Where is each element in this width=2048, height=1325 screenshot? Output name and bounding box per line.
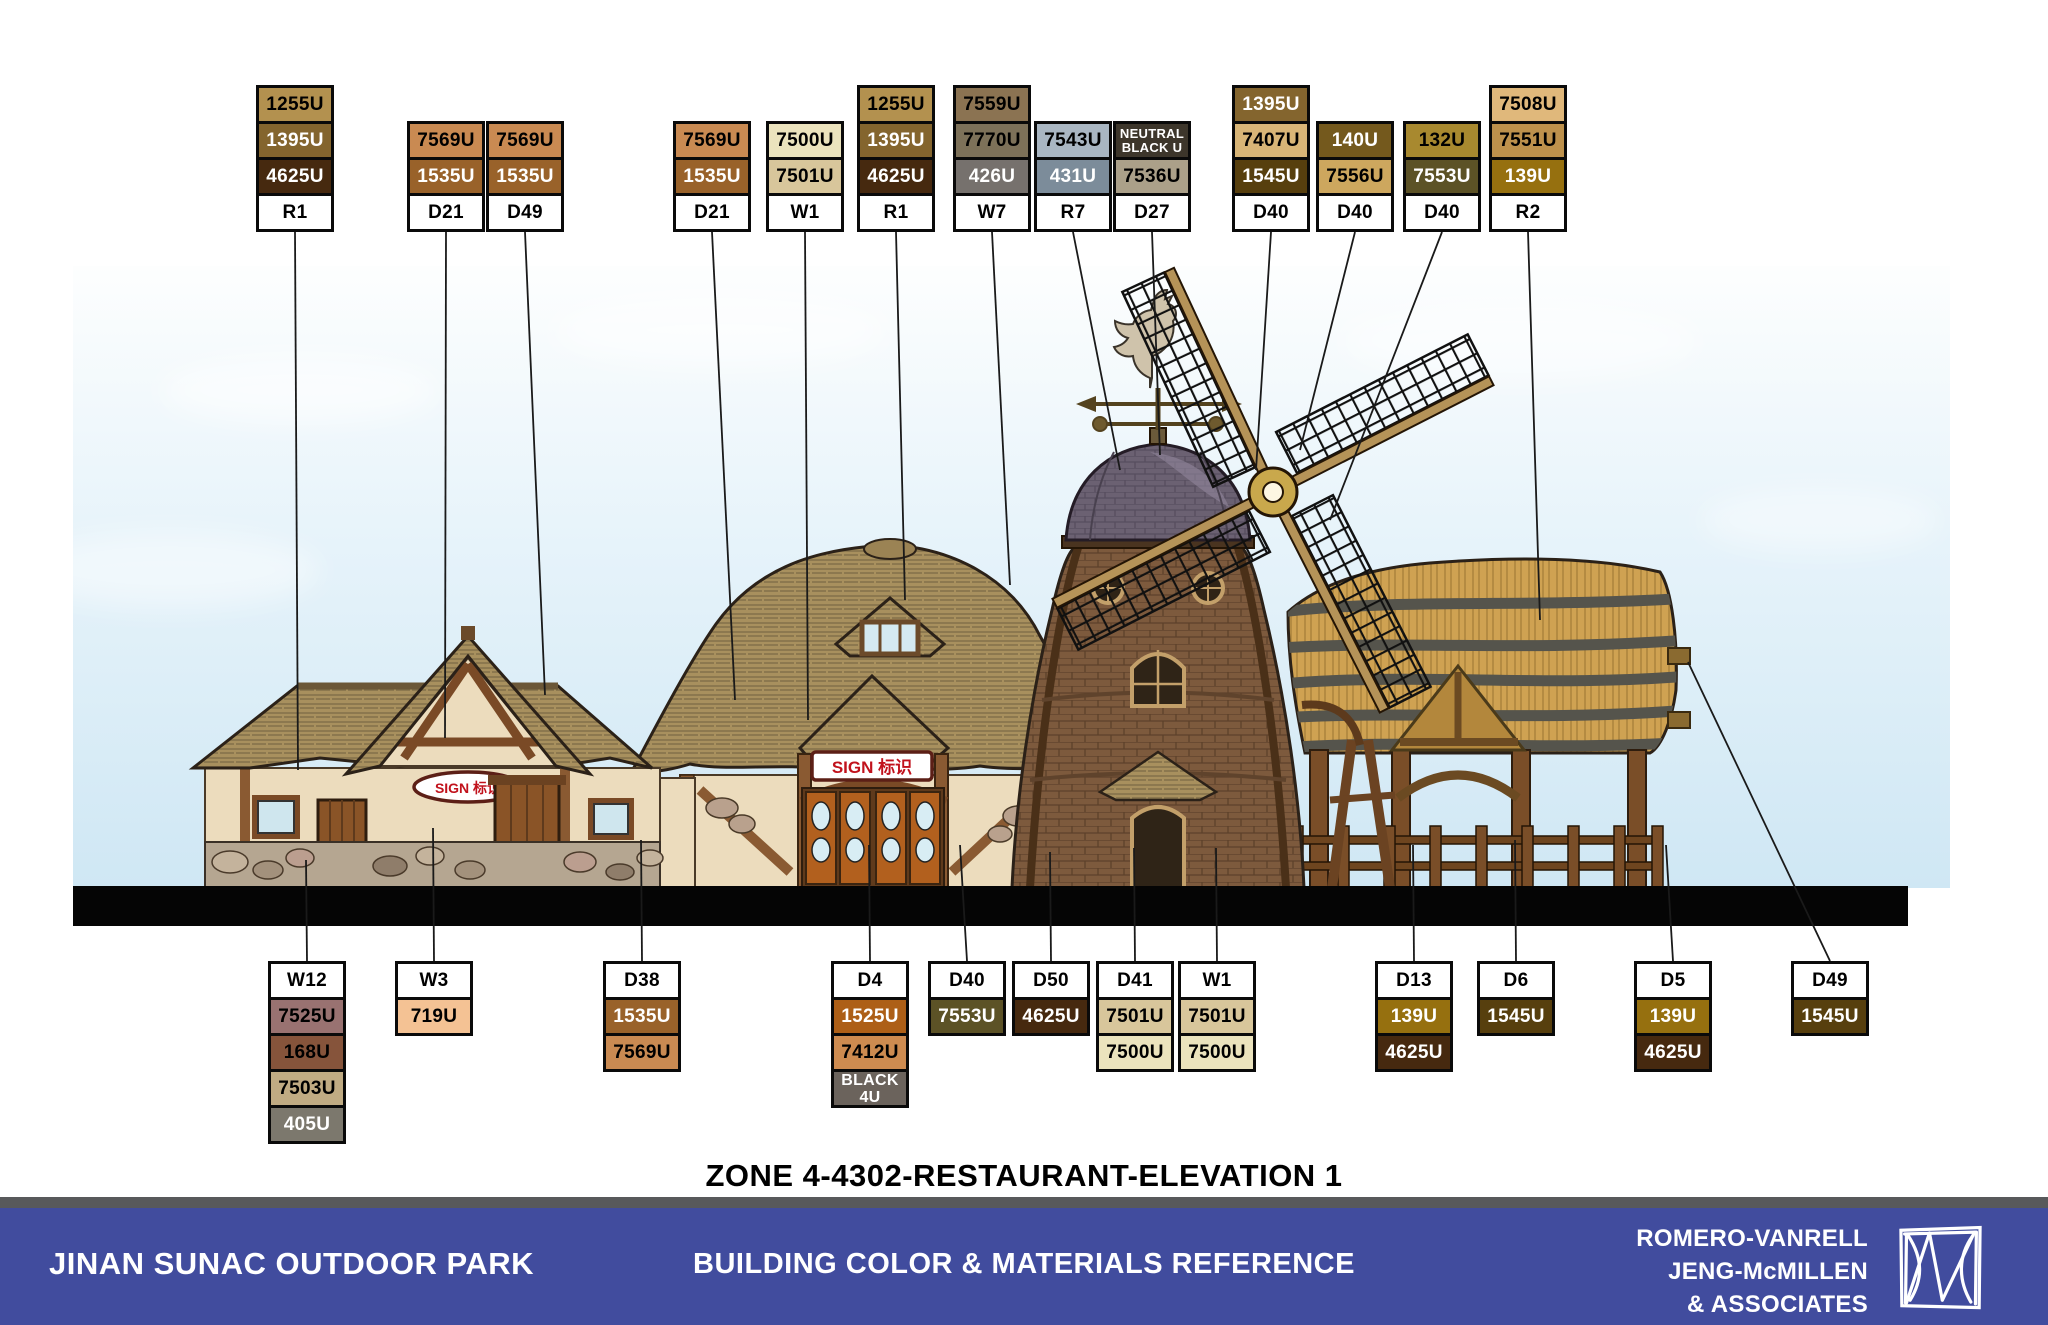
chip-1255U: 1255U [259, 88, 331, 121]
callout-D40: 1395U7407U1545UD40 [1232, 85, 1310, 232]
callout-R2: 7508U7551U139UR2 [1489, 85, 1567, 232]
callout-code-D49: D49 [489, 193, 561, 229]
callout-code-R7: R7 [1037, 193, 1109, 229]
leader-line [1134, 848, 1135, 961]
chip-1525U: 1525U [834, 997, 906, 1033]
leader-line [1515, 840, 1516, 961]
callout-R1: 1255U1395U4625UR1 [256, 85, 334, 232]
chip-1535U: 1535U [676, 157, 748, 193]
callout-code-D5: D5 [1637, 964, 1709, 997]
chip-7556U: 7556U [1319, 157, 1391, 193]
chip-4625U: 4625U [860, 157, 932, 193]
firm-line-2: JENG-McMILLEN [1636, 1255, 1868, 1288]
chip-140U: 140U [1319, 124, 1391, 157]
callout-code-D40: D40 [931, 964, 1003, 997]
leader-line [1413, 845, 1414, 961]
callout-code-D21: D21 [410, 193, 482, 229]
chip-405U: 405U [271, 1105, 343, 1141]
callout-code-W1: W1 [1181, 964, 1253, 997]
chip-7569U: 7569U [676, 124, 748, 157]
callout-code-D40: D40 [1235, 193, 1307, 229]
callout-code-D38: D38 [606, 964, 678, 997]
callout-code-D13: D13 [1378, 964, 1450, 997]
callout-R1: 1255U1395U4625UR1 [857, 85, 935, 232]
chip-7770U: 7770U [956, 121, 1028, 157]
chip-7412U: 7412U [834, 1033, 906, 1069]
chip-NEUTRAL-BLACK-U: NEUTRAL BLACK U [1116, 124, 1188, 157]
callout-code-R2: R2 [1492, 193, 1564, 229]
chip-1255U: 1255U [860, 88, 932, 121]
chip-4625U: 4625U [1015, 997, 1087, 1033]
leader-line [433, 828, 434, 961]
chip-7543U: 7543U [1037, 124, 1109, 157]
chip-168U: 168U [271, 1033, 343, 1069]
firm-line-3: & ASSOCIATES [1636, 1288, 1868, 1321]
leader-line [869, 845, 870, 961]
callout-code-D4: D4 [834, 964, 906, 997]
firm-line-1: ROMERO-VANRELL [1636, 1222, 1868, 1255]
chip-7536U: 7536U [1116, 157, 1188, 193]
chip-7569U: 7569U [489, 124, 561, 157]
callout-code-W3: W3 [398, 964, 470, 997]
callout-R7: 7543U431UR7 [1034, 121, 1112, 232]
chip-7500U: 7500U [1181, 1033, 1253, 1069]
callout-D40: D407553U [928, 961, 1006, 1036]
callout-D21: 7569U1535UD21 [673, 121, 751, 232]
chip-BLACK-4U: BLACK 4U [834, 1069, 906, 1105]
callout-D40: 140U7556UD40 [1316, 121, 1394, 232]
callout-D49: D491545U [1791, 961, 1869, 1036]
chip-1545U: 1545U [1480, 997, 1552, 1033]
callout-D4: D41525U7412UBLACK 4U [831, 961, 909, 1108]
ground-strip [73, 886, 1908, 926]
callout-code-R1: R1 [860, 193, 932, 229]
chip-7501U: 7501U [769, 157, 841, 193]
page-title: ZONE 4-4302-RESTAURANT-ELEVATION 1 [0, 1158, 2048, 1194]
chip-7508U: 7508U [1492, 88, 1564, 121]
callout-code-W7: W7 [956, 193, 1028, 229]
callout-D13: D13139U4625U [1375, 961, 1453, 1072]
chip-1545U: 1545U [1794, 997, 1866, 1033]
chip-7501U: 7501U [1181, 997, 1253, 1033]
callout-code-R1: R1 [259, 193, 331, 229]
firm-logo-icon [1893, 1222, 1988, 1314]
leader-line [445, 232, 446, 738]
callout-W3: W3719U [395, 961, 473, 1036]
callout-D40: 132U7553UD40 [1403, 121, 1481, 232]
leader-line [306, 860, 307, 961]
chip-719U: 719U [398, 997, 470, 1033]
chip-1545U: 1545U [1235, 157, 1307, 193]
callout-D50: D504625U [1012, 961, 1090, 1036]
callout-D49: 7569U1535UD49 [486, 121, 564, 232]
chip-7559U: 7559U [956, 88, 1028, 121]
footer-divider [0, 1197, 2048, 1208]
callout-D38: D381535U7569U [603, 961, 681, 1072]
chip-4625U: 4625U [1378, 1033, 1450, 1069]
chip-7569U: 7569U [606, 1033, 678, 1069]
dormer-window [862, 622, 918, 654]
elevation-reference-sheet: SIGN 标识 [0, 0, 2048, 1325]
callout-code-W1: W1 [769, 193, 841, 229]
chip-7525U: 7525U [271, 997, 343, 1033]
callout-code-D41: D41 [1099, 964, 1171, 997]
chip-431U: 431U [1037, 157, 1109, 193]
callout-code-D6: D6 [1480, 964, 1552, 997]
chip-7551U: 7551U [1492, 121, 1564, 157]
callout-W1: 7500U7501UW1 [766, 121, 844, 232]
callout-code-D49: D49 [1794, 964, 1866, 997]
chip-7569U: 7569U [410, 124, 482, 157]
callout-W7: 7559U7770U426UW7 [953, 85, 1031, 232]
callout-W1: W17501U7500U [1178, 961, 1256, 1072]
chip-1395U: 1395U [1235, 88, 1307, 121]
chip-7553U: 7553U [1406, 157, 1478, 193]
callout-D41: D417501U7500U [1096, 961, 1174, 1072]
callout-code-D27: D27 [1116, 193, 1188, 229]
roof-beam-stub-upper [1668, 648, 1690, 664]
chip-7407U: 7407U [1235, 121, 1307, 157]
footer-bar: JINAN SUNAC OUTDOOR PARK BUILDING COLOR … [0, 1208, 2048, 1325]
chip-139U: 139U [1492, 157, 1564, 193]
chip-1535U: 1535U [489, 157, 561, 193]
callout-code-D40: D40 [1319, 193, 1391, 229]
center-sign-text: SIGN 标识 [832, 757, 912, 777]
chip-426U: 426U [956, 157, 1028, 193]
callout-code-D40: D40 [1406, 193, 1478, 229]
windmill-mid-window [1132, 650, 1184, 706]
chip-4625U: 4625U [259, 157, 331, 193]
firm-name: ROMERO-VANRELL JENG-McMILLEN & ASSOCIATE… [1636, 1222, 1868, 1321]
leader-line [641, 840, 642, 961]
callout-D21: 7569U1535UD21 [407, 121, 485, 232]
chip-4625U: 4625U [1637, 1033, 1709, 1069]
chip-139U: 139U [1378, 997, 1450, 1033]
chip-1535U: 1535U [410, 157, 482, 193]
callout-W12: W127525U168U7503U405U [268, 961, 346, 1144]
chip-7553U: 7553U [931, 997, 1003, 1033]
chip-1535U: 1535U [606, 997, 678, 1033]
chip-7500U: 7500U [769, 124, 841, 157]
callout-code-D21: D21 [676, 193, 748, 229]
callout-code-D50: D50 [1015, 964, 1087, 997]
callout-D5: D5139U4625U [1634, 961, 1712, 1072]
chip-7503U: 7503U [271, 1069, 343, 1105]
callout-D27: NEUTRAL BLACK U7536UD27 [1113, 121, 1191, 232]
callout-code-W12: W12 [271, 964, 343, 997]
right-pavilion [1238, 559, 1690, 888]
chip-7501U: 7501U [1099, 997, 1171, 1033]
chip-139U: 139U [1637, 997, 1709, 1033]
leader-line [1050, 852, 1051, 961]
chip-7500U: 7500U [1099, 1033, 1171, 1069]
chip-1395U: 1395U [259, 121, 331, 157]
callout-D6: D61545U [1477, 961, 1555, 1036]
chip-1395U: 1395U [860, 121, 932, 157]
roof-beam-stub-lower [1668, 712, 1690, 728]
windmill-door [1132, 807, 1184, 888]
chip-132U: 132U [1406, 124, 1478, 157]
leader-line [1216, 848, 1217, 961]
